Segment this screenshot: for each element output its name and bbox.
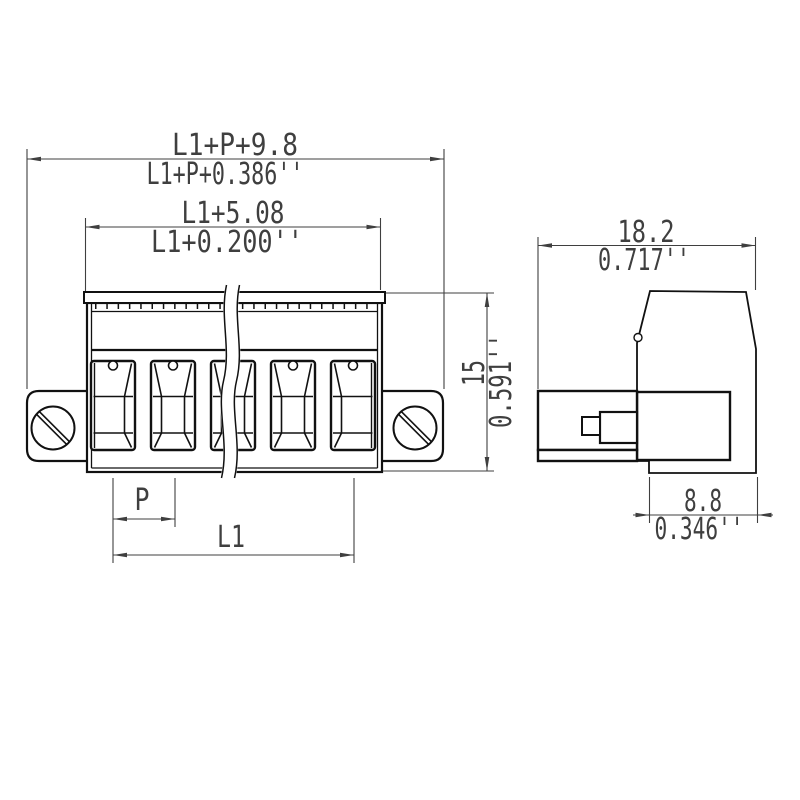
- side-view: [538, 291, 756, 473]
- technical-drawing: L1+P+9.8 L1+P+0.386'' L1+5.08 L1+0.200''…: [0, 0, 800, 800]
- mounting-screw-left-icon: [32, 407, 75, 450]
- side-contact-pin-outer: [600, 412, 637, 443]
- break-lines: [221, 285, 239, 478]
- dimension-base-depth: 8.8 0.346'': [633, 477, 773, 547]
- mounting-screw-right-icon: [394, 407, 437, 450]
- side-contact-block: [637, 392, 730, 460]
- dim-height-inch-label: 0.591'': [484, 334, 519, 428]
- terminal-cell-1: [91, 361, 135, 450]
- dimension-pitch: P: [113, 478, 175, 563]
- dim-pitch-label: P: [135, 483, 150, 518]
- side-contact-pin-tip: [582, 417, 600, 435]
- terminal-cell-2: [151, 361, 195, 450]
- terminal-cell-5: [331, 361, 375, 450]
- front-view: [27, 285, 443, 478]
- dim-length-label: L1: [217, 520, 245, 555]
- dim-inner-inch-label: L1+0.200'': [151, 225, 303, 260]
- dim-overall-inch-label: L1+P+0.386'': [147, 157, 304, 192]
- side-latch-bump: [634, 334, 642, 342]
- terminal-cell-4: [271, 361, 315, 450]
- dim-depth-inch-label: 0.717'': [598, 243, 690, 278]
- dimension-inner-width: L1+5.08 L1+0.200'': [86, 196, 381, 291]
- drawing-canvas: L1+P+9.8 L1+P+0.386'' L1+5.08 L1+0.200''…: [0, 0, 800, 800]
- side-plug-base-strip: [538, 450, 637, 461]
- dim-base-inch-label: 0.346'': [655, 512, 744, 547]
